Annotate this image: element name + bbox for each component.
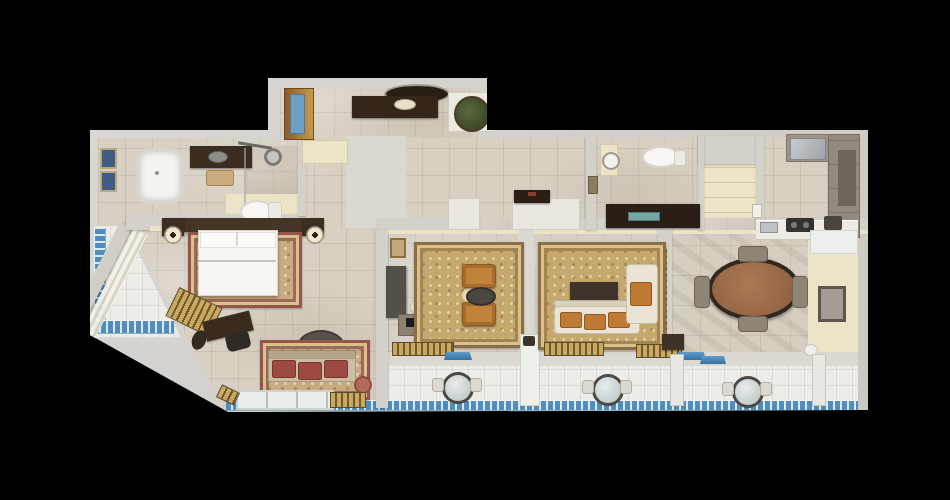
dining-chair-west [694,276,710,308]
pantry-unit [838,150,856,206]
burner-2 [803,222,809,228]
dining-sideboard [810,230,858,254]
tub-drain [155,171,159,175]
bistro-chair-3b [760,382,772,396]
console-tray [394,99,416,110]
rain-shower-head [264,148,282,166]
bed-pillows [200,232,276,248]
pedestal-ornament [523,336,535,346]
sofa-cushion-2 [584,314,606,330]
dining-side-piece [662,334,684,350]
vanity-basin [208,151,228,163]
bed-fold [198,260,276,262]
bistro-chair-1a [432,378,444,392]
living-threshold [392,342,454,356]
pillow-seam [236,232,238,246]
armchair-1 [462,264,496,288]
sofa-cushion-1 [560,312,582,328]
living-door-mat [444,352,472,360]
side-balcony-mosaic-bottom [94,320,174,334]
family-threshold-1 [544,342,604,356]
entry-door-glass [290,94,305,134]
light-switch [752,204,762,218]
suite-floor-plan [0,0,950,500]
bath-stool [206,170,234,186]
balcony-partition-1 [670,354,684,406]
dining-chair-south [738,316,768,332]
console-decor [528,192,536,196]
foyer-wall-art [588,176,598,194]
dining-table [708,258,800,320]
potted-plant [454,96,490,132]
table-lamp-left [164,226,182,244]
bistro-chair-3a [722,382,734,396]
small-appliance [824,216,842,230]
dining-door-mat [700,356,726,364]
dining-chair-north [738,246,768,262]
living-wall-art [390,238,406,258]
guest-basin [602,152,620,170]
burner-1 [791,222,797,228]
tv-cabinet [386,266,406,318]
bath-wall-art-1 [100,148,117,169]
steel-appliance [790,138,826,160]
table-lamp-right [306,226,324,244]
settee-cushion-2 [298,362,322,380]
bathtub [136,148,184,204]
bedroom-living-wall [376,230,388,408]
bath-wall-art-2 [100,171,117,192]
bedroom-threshold [330,392,366,408]
vanity-screen [628,212,660,221]
bistro-chair-1b [470,378,482,392]
closet-shelving [302,140,348,164]
balcony-partition-2 [812,354,826,406]
bistro-chair-2a [582,380,594,394]
coffee-table [466,287,496,306]
dining-wall-art [818,286,846,322]
settee-cushion-1 [272,360,296,378]
settee-cushion-3 [324,360,348,378]
service-shaft-wall [346,136,406,230]
scene-background [0,0,950,500]
lounge-cushion [630,282,652,306]
bistro-chair-2b [620,380,632,394]
niche-top-wall [698,136,762,164]
bedroom-balcony-door [236,390,334,410]
dining-chair-east [792,276,808,308]
guest-toilet-tank [674,150,686,166]
foyer-wall-block-a [448,198,480,230]
kitchen-sink [760,222,778,233]
